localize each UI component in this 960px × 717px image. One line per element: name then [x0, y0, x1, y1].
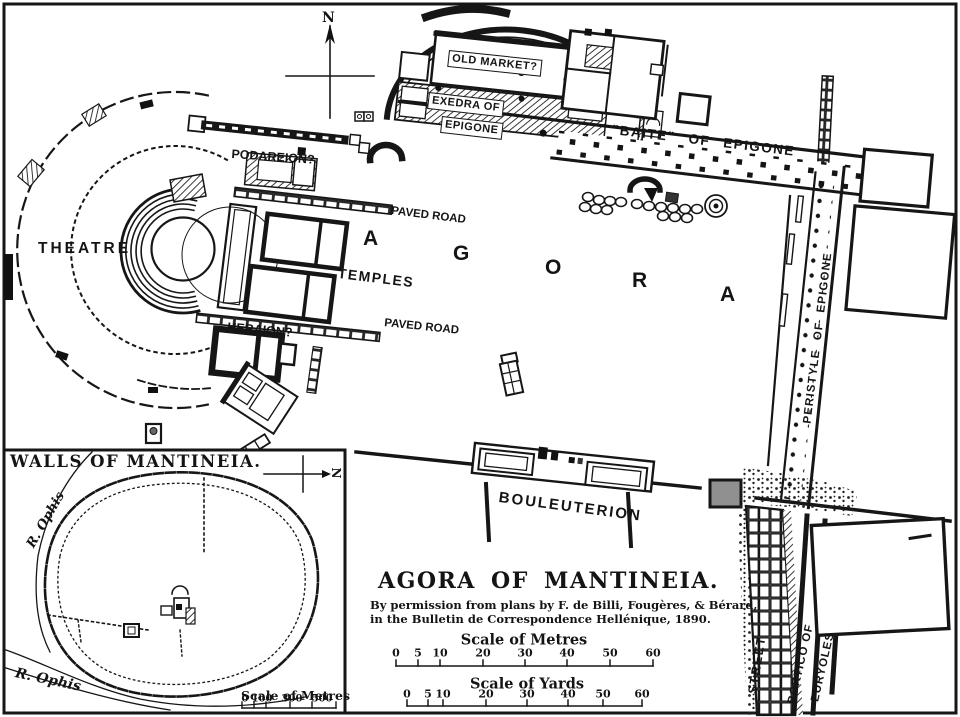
attribution-line1: By permission from plans by F. de Billi,… — [370, 598, 757, 612]
podareion-label: PODAREION? — [231, 147, 315, 167]
compass-north-label: N — [322, 10, 335, 26]
old-market-label: OLD MARKET? — [447, 50, 542, 77]
agora-letter-r: R — [632, 269, 647, 293]
heraion-label: HERAION? — [227, 320, 293, 340]
scale-metres-tick-6: 50 — [602, 647, 617, 660]
paved-road-upper-label: PAVED ROAD — [391, 205, 467, 226]
map-stage: N OLD MARKET? EXEDRA OF EPIGONE "BAITE" … — [0, 0, 960, 717]
scale-metres-tick-3: 20 — [475, 647, 490, 660]
theatre-label: THEATRE — [38, 240, 131, 258]
river-ophis-label-upper: R. Ophis — [24, 489, 68, 550]
scale-yards-tick-2: 10 — [435, 688, 450, 701]
scale-metres-tick-5: 40 — [559, 647, 574, 660]
scale-yards-tick-6: 50 — [595, 688, 610, 701]
scale-yards-tick-7: 60 — [634, 688, 649, 701]
scale-yards-tick-1: 5 — [424, 688, 432, 701]
inset-scale-tick-1: 100 — [252, 694, 273, 705]
map-title: AGORA OF MANTINEIA. — [378, 568, 719, 594]
scale-yards-tick-0: 0 — [403, 688, 411, 701]
exedra-label-line2: EPIGONE — [440, 116, 503, 140]
scale-metres-tick-1: 5 — [414, 647, 422, 660]
inset-scale-tick-0: 0 — [242, 694, 249, 705]
agora-letter-a1: A — [363, 227, 378, 251]
scale-yards-tick-5: 40 — [560, 688, 575, 701]
agora-letter-o: O — [545, 256, 561, 280]
baite-label: "BAITE" OF EPIGONE — [611, 122, 796, 159]
temples-label: TEMPLES — [337, 265, 415, 290]
street-label: STREET — [746, 635, 769, 695]
exedra-label-line1: EXEDRA OF — [427, 92, 505, 117]
inset-title: WALLS OF MANTINEIA. — [10, 452, 262, 471]
inset-scale-tick-2: 300 — [282, 694, 303, 705]
scale-metres-tick-0: 0 — [392, 647, 400, 660]
bouleuterion-label: BOULEUTERION — [498, 489, 643, 525]
inset-scale-tick-3: 500 — [312, 694, 333, 705]
inset-compass-north-label: N — [329, 468, 343, 479]
agora-letter-a2: A — [720, 283, 735, 307]
label-layer: N OLD MARKET? EXEDRA OF EPIGONE "BAITE" … — [0, 0, 960, 717]
paved-road-lower-label: PAVED ROAD — [384, 317, 460, 337]
scale-metres-tick-7: 60 — [645, 647, 660, 660]
scale-yards-tick-4: 30 — [519, 688, 534, 701]
scale-yards-tick-3: 20 — [478, 688, 493, 701]
scale-metres-tick-4: 30 — [517, 647, 532, 660]
peristyle-label: PERISTYLE OF EPIGONE — [802, 252, 835, 425]
portico-label-line2: EURYOLES — [809, 631, 837, 703]
agora-letter-g: G — [453, 242, 469, 266]
attribution-line2: in the Bulletin de Correspondence Hellén… — [370, 612, 711, 626]
scale-metres-tick-2: 10 — [432, 647, 447, 660]
river-ophis-label-lower: R. Ophis — [14, 665, 83, 695]
